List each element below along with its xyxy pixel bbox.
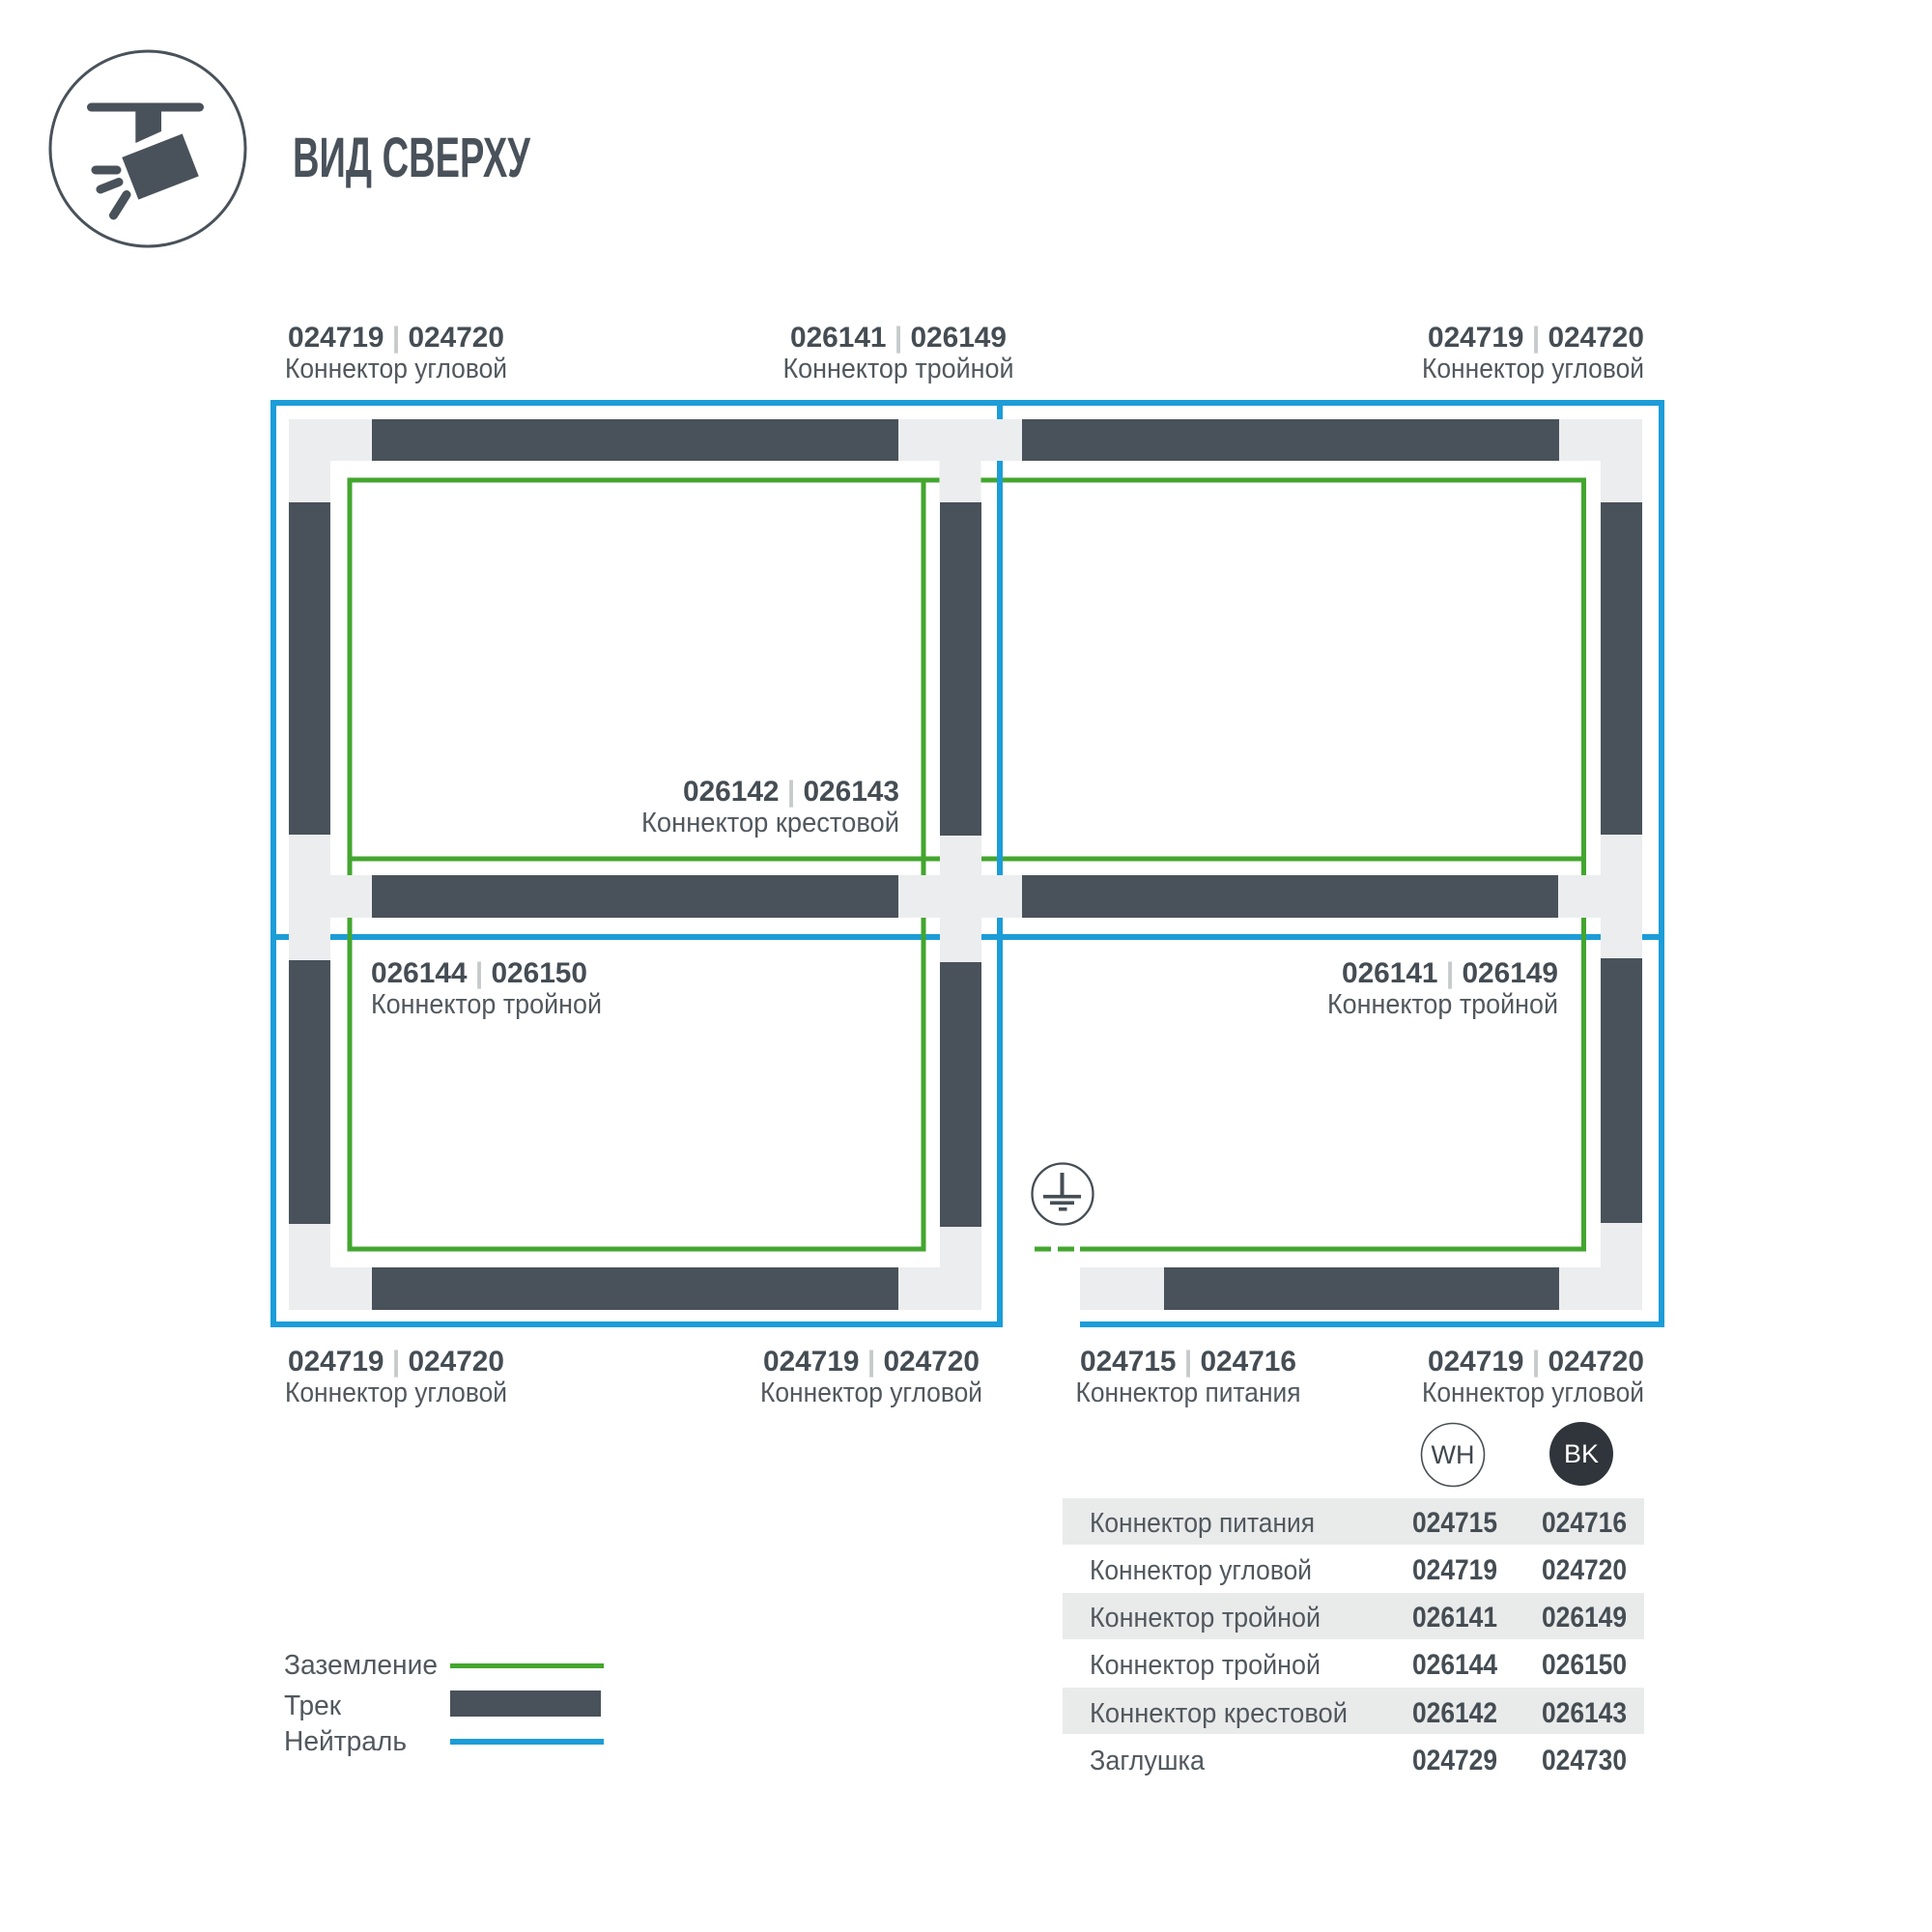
svg-text:024720: 024720 [1542, 1554, 1627, 1586]
svg-text:Коннектор угловой: Коннектор угловой [285, 354, 507, 384]
svg-text:026144 | 026150: 026144 | 026150 [371, 957, 587, 989]
svg-text:Коннектор тройной: Коннектор тройной [783, 354, 1014, 384]
svg-text:024719: 024719 [1412, 1554, 1497, 1586]
svg-text:Заглушка: Заглушка [1090, 1746, 1205, 1776]
svg-text:Коннектор угловой: Коннектор угловой [285, 1378, 507, 1408]
svg-text:Коннектор крестовой: Коннектор крестовой [641, 808, 899, 838]
svg-text:Коннектор угловой: Коннектор угловой [1422, 354, 1644, 384]
svg-text:Коннектор угловой: Коннектор угловой [1090, 1555, 1312, 1586]
svg-text:024719 | 024720: 024719 | 024720 [288, 322, 504, 354]
svg-text:026144: 026144 [1412, 1649, 1497, 1681]
svg-text:Коннектор угловой: Коннектор угловой [1422, 1378, 1644, 1408]
svg-text:024715: 024715 [1412, 1507, 1497, 1539]
svg-text:024716: 024716 [1542, 1507, 1627, 1539]
svg-text:WH: WH [1432, 1440, 1475, 1469]
svg-text:ВИД СВЕРХУ: ВИД СВЕРХУ [293, 127, 531, 189]
svg-text:024719 | 024720: 024719 | 024720 [288, 1346, 504, 1378]
svg-text:024719 | 024720: 024719 | 024720 [1428, 322, 1644, 354]
svg-text:Коннектор тройной: Коннектор тройной [1090, 1603, 1321, 1634]
svg-text:024715 | 024716: 024715 | 024716 [1080, 1346, 1296, 1378]
svg-text:026142: 026142 [1412, 1697, 1497, 1729]
svg-text:026150: 026150 [1542, 1649, 1627, 1681]
svg-text:Коннектор тройной: Коннектор тройной [371, 989, 602, 1020]
svg-text:Нейтраль: Нейтраль [284, 1726, 407, 1757]
svg-text:BK: BK [1564, 1439, 1599, 1468]
svg-text:024729: 024729 [1412, 1745, 1497, 1776]
svg-text:026141 | 026149: 026141 | 026149 [790, 322, 1007, 354]
svg-text:Коннектор питания: Коннектор питания [1076, 1378, 1301, 1408]
svg-text:Коннектор тройной: Коннектор тройной [1327, 989, 1558, 1020]
svg-text:026149: 026149 [1542, 1602, 1627, 1634]
svg-text:026141: 026141 [1412, 1602, 1497, 1634]
svg-text:024730: 024730 [1542, 1745, 1627, 1776]
svg-text:024719 | 024720: 024719 | 024720 [763, 1346, 980, 1378]
svg-text:Трек: Трек [284, 1690, 342, 1721]
svg-text:026143: 026143 [1542, 1697, 1627, 1729]
svg-text:Коннектор крестовой: Коннектор крестовой [1090, 1698, 1348, 1729]
svg-text:026142 | 026143: 026142 | 026143 [683, 776, 899, 808]
svg-text:026141 | 026149: 026141 | 026149 [1342, 957, 1558, 989]
svg-text:Заземление: Заземление [284, 1650, 438, 1681]
svg-text:024719 | 024720: 024719 | 024720 [1428, 1346, 1644, 1378]
svg-text:Коннектор питания: Коннектор питания [1090, 1508, 1315, 1539]
svg-text:Коннектор угловой: Коннектор угловой [760, 1378, 982, 1408]
svg-text:Коннектор тройной: Коннектор тройной [1090, 1650, 1321, 1681]
